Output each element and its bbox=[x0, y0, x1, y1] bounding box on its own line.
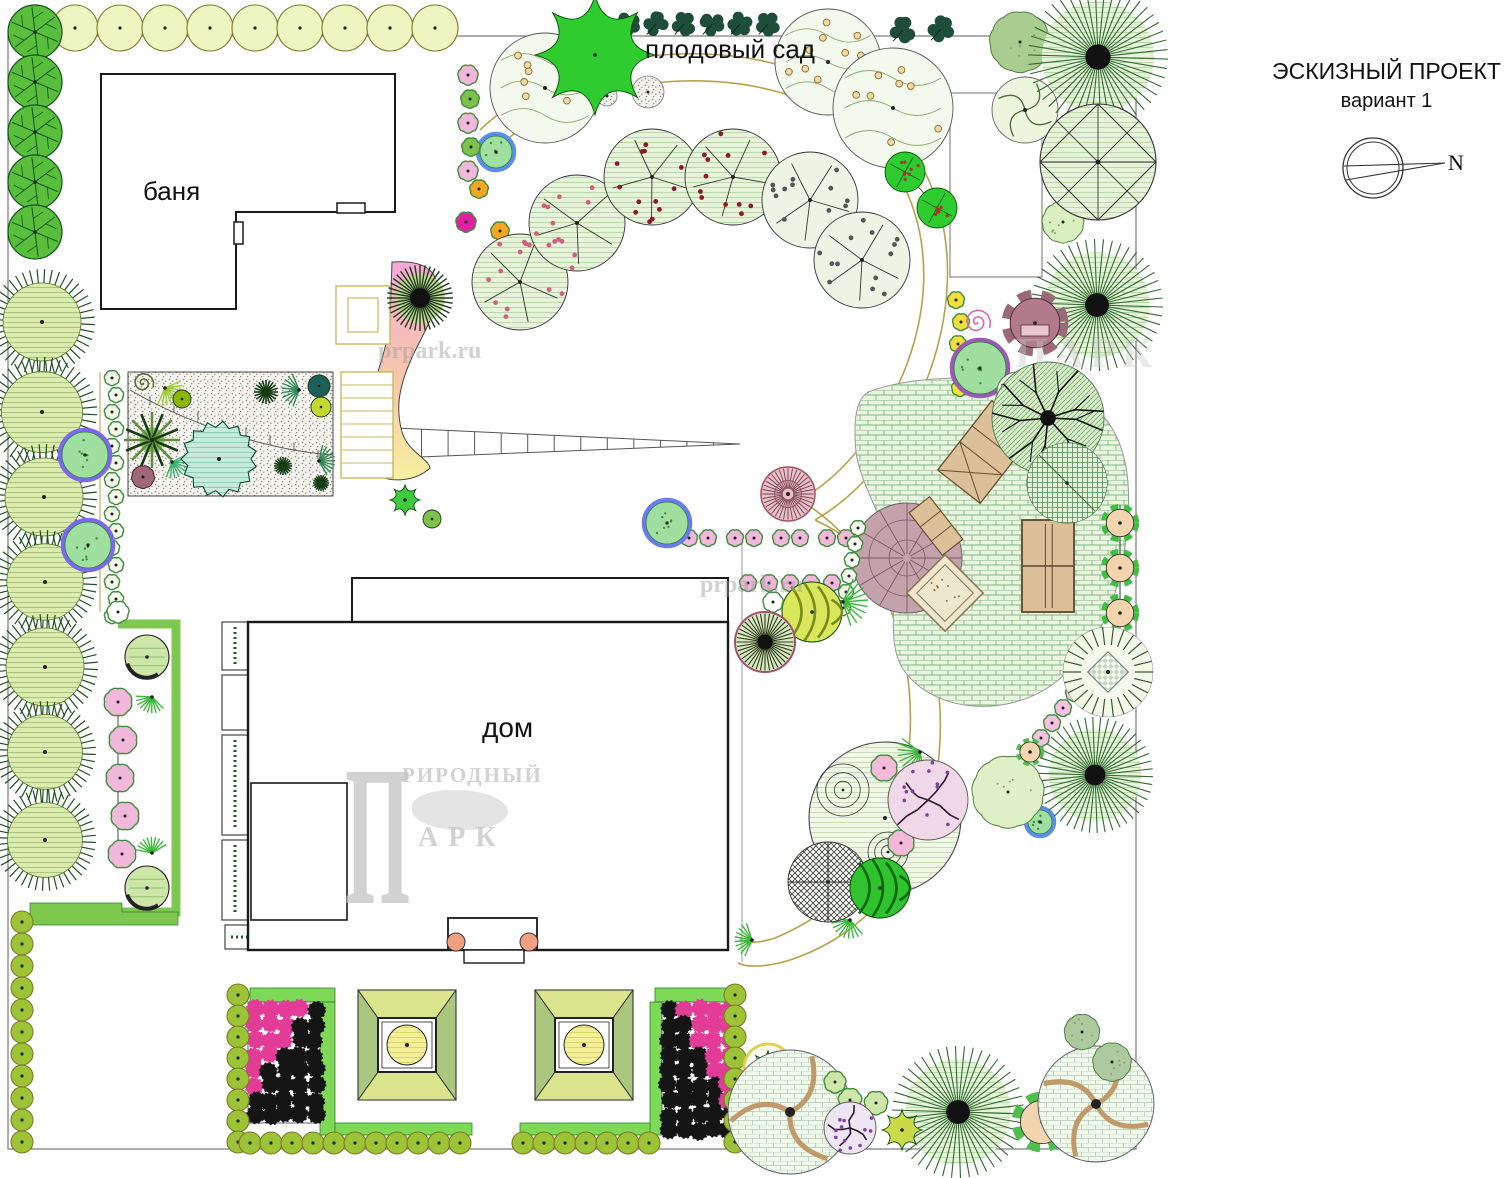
watermark-logo-partial: ПАРК bbox=[1015, 330, 1158, 378]
orchard-label: плодовый сад bbox=[640, 34, 820, 65]
bathhouse-label: баня bbox=[143, 176, 200, 207]
compass-rose bbox=[1343, 138, 1445, 198]
page-subtitle: вариант 1 bbox=[1268, 90, 1505, 113]
page-title: ЭСКИЗНЫЙ ПРОЕКТ bbox=[1268, 58, 1505, 85]
pergola bbox=[395, 428, 740, 458]
house-label: дом bbox=[482, 712, 533, 744]
watermark-site-2: prpark.ru bbox=[700, 572, 803, 599]
watermark-logo-initial: П bbox=[345, 755, 410, 919]
watermark-logo-word2: АРК bbox=[418, 822, 506, 854]
garden-plan-page: prpark.ru prpark.ru П РИРОДНЫЙ АРК ПАРК … bbox=[0, 0, 1505, 1178]
parterre-garden bbox=[245, 988, 740, 1140]
watermark-logo-word1: РИРОДНЫЙ bbox=[402, 763, 543, 788]
compass-north-label: N bbox=[1448, 150, 1464, 176]
watermark-site-1: prpark.ru bbox=[378, 338, 481, 365]
deck-steps bbox=[336, 286, 393, 478]
